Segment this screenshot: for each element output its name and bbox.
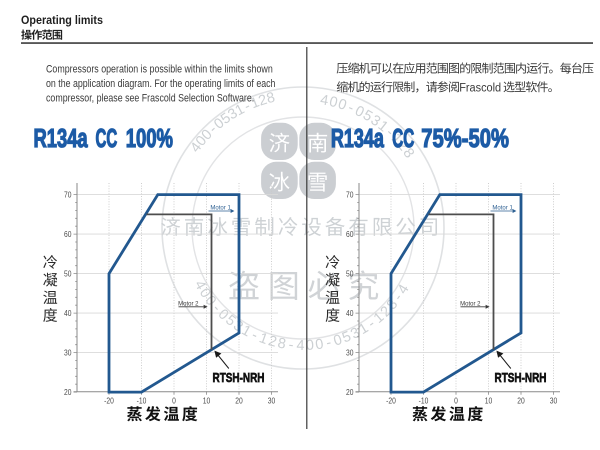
svg-text:RTSH-NRH: RTSH-NRH [213, 371, 265, 386]
svg-text:20: 20 [346, 387, 353, 397]
svg-text:CC: CC [96, 125, 118, 153]
svg-text:R134a: R134a [331, 124, 384, 153]
svg-text:70: 70 [64, 190, 71, 200]
svg-text:60: 60 [346, 229, 353, 239]
svg-text:-20: -20 [104, 396, 114, 406]
svg-text:-10: -10 [419, 396, 429, 406]
svg-text:40: 40 [64, 308, 71, 318]
svg-text:Frascold: Frascold [459, 82, 501, 95]
svg-text:50: 50 [346, 269, 353, 279]
svg-text:Motor 2: Motor 2 [178, 300, 199, 307]
svg-text:30: 30 [64, 348, 71, 358]
svg-text:60: 60 [64, 229, 71, 239]
svg-text:70: 70 [346, 190, 353, 200]
svg-text:10: 10 [203, 396, 210, 406]
svg-text:0: 0 [454, 396, 458, 406]
svg-text:compressor, please see Frascol: compressor, please see Frascold Selectio… [46, 93, 254, 105]
svg-text:20: 20 [235, 396, 242, 406]
svg-text:on the application diagram. Fo: on the application diagram. For the oper… [46, 78, 275, 90]
svg-text:Compressors operation is possi: Compressors operation is possible within… [46, 64, 273, 76]
svg-text:30: 30 [268, 396, 275, 406]
svg-text:10: 10 [485, 396, 492, 406]
svg-text:0: 0 [172, 396, 176, 406]
svg-text:30: 30 [550, 396, 557, 406]
svg-text:CC: CC [392, 124, 414, 153]
svg-text:20: 20 [517, 396, 524, 406]
svg-text:Motor 2: Motor 2 [460, 300, 481, 307]
svg-text:20: 20 [64, 387, 71, 397]
svg-text:RTSH-NRH: RTSH-NRH [495, 371, 547, 386]
svg-text:75%-50%: 75%-50% [421, 124, 509, 153]
svg-text:30: 30 [346, 348, 353, 358]
svg-text:R134a: R134a [34, 124, 89, 153]
svg-text:Motor 1: Motor 1 [492, 204, 513, 211]
svg-text:50: 50 [64, 269, 71, 279]
svg-text:100%: 100% [126, 124, 173, 153]
svg-text:Operating limits: Operating limits [21, 13, 103, 27]
svg-text:40: 40 [346, 308, 353, 318]
svg-text:-20: -20 [386, 396, 396, 406]
svg-text:Motor 1: Motor 1 [210, 204, 231, 211]
svg-text:4: 4 [296, 338, 304, 354]
svg-text:-10: -10 [137, 396, 147, 406]
